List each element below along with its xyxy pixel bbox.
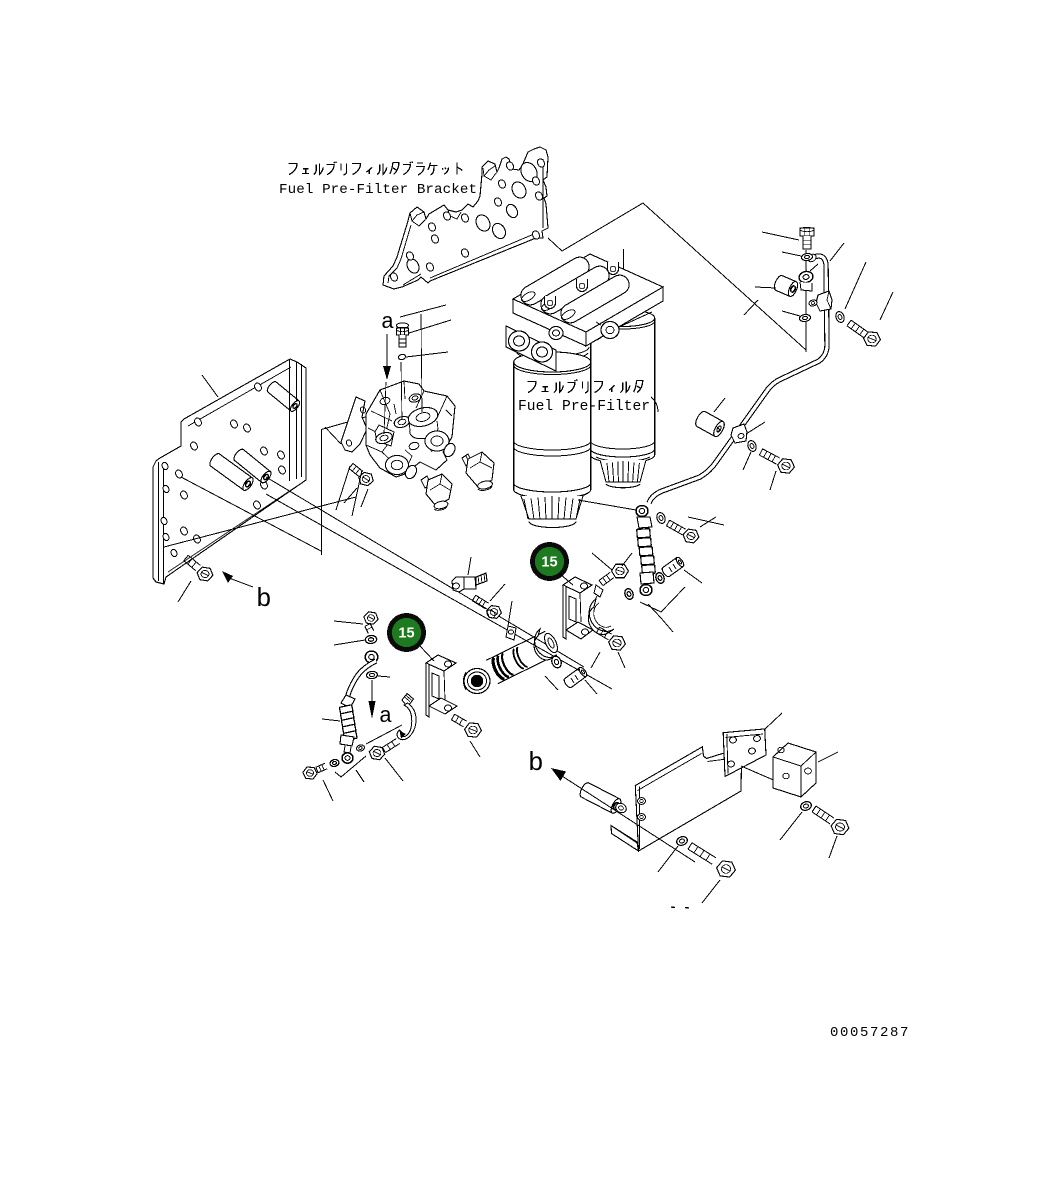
svg-text:15: 15 bbox=[398, 626, 414, 642]
svg-text:00057287: 00057287 bbox=[830, 1025, 910, 1041]
svg-text:15: 15 bbox=[541, 555, 557, 571]
svg-text:b: b bbox=[256, 584, 272, 614]
svg-text:Fuel Pre-Filter: Fuel Pre-Filter bbox=[518, 399, 650, 415]
svg-text:a: a bbox=[379, 704, 392, 729]
svg-text:Fuel Pre-Filter Bracket: Fuel Pre-Filter Bracket bbox=[279, 182, 477, 198]
svg-text:a: a bbox=[381, 310, 394, 335]
svg-text:b: b bbox=[528, 748, 544, 778]
